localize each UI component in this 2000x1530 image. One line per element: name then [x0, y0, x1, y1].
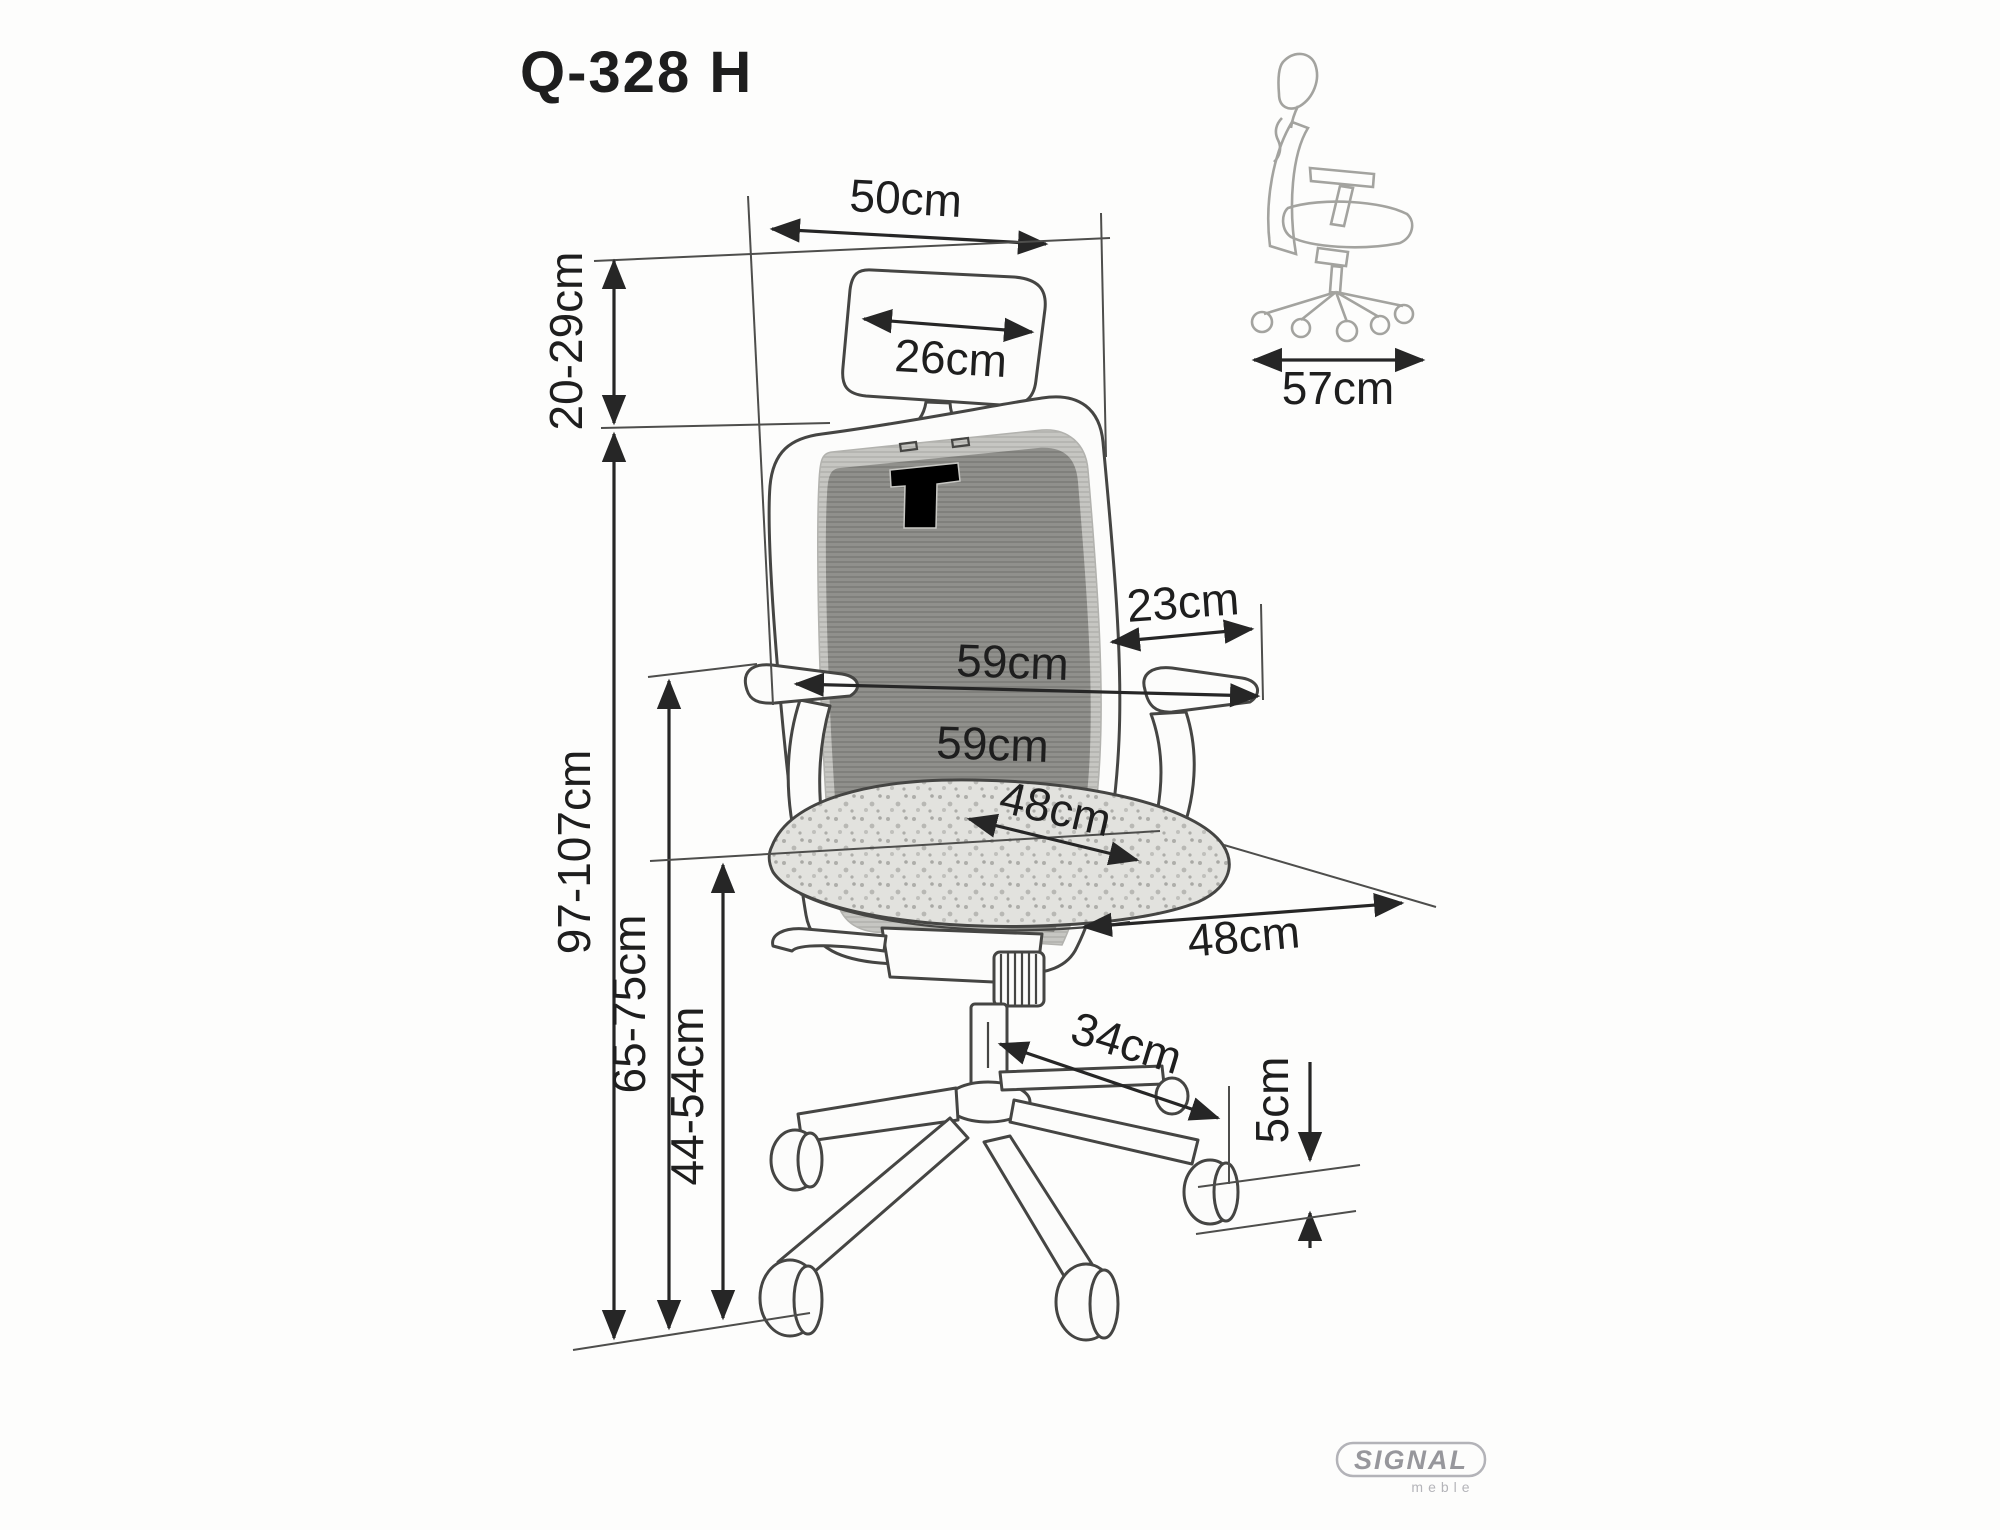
leg-front-right — [984, 1136, 1092, 1276]
dim-label-backrest-width: 50cm — [848, 169, 963, 227]
dim-backrest-width-ext-left — [748, 196, 773, 705]
spec-sheet: Q-328 H 50cm 20-29cm 26cm 23cm 59cm 59cm… — [0, 0, 2000, 1530]
dim-label-headrest-range: 20-29cm — [540, 252, 592, 431]
dim-label-headrest-width: 26cm — [893, 329, 1008, 387]
ref-line-armrest-level — [648, 664, 757, 677]
side-mechanism — [1316, 248, 1348, 266]
side-base — [1252, 292, 1413, 341]
logo-sub-text: meble — [1411, 1479, 1474, 1495]
dim-seat-depth-ext — [1224, 845, 1436, 907]
brand-logo: SIGNAL meble — [1337, 1443, 1485, 1495]
caster-front-left — [760, 1260, 822, 1336]
ref-line-headrest-top — [594, 238, 1110, 261]
dim-backrest-width-ext-right — [1101, 213, 1106, 457]
dim-armrest-pad-ext — [1261, 604, 1263, 700]
caster-back-left — [771, 1130, 822, 1190]
gas-lift-bellow — [994, 952, 1044, 1006]
right-armrest-pad — [1144, 668, 1258, 712]
dim-label-caster: 5cm — [1246, 1057, 1298, 1144]
dim-label-width-mid: 59cm — [935, 716, 1049, 772]
logo-brand-text: SIGNAL — [1354, 1445, 1468, 1475]
dim-label-armrest-height: 65-75cm — [603, 915, 655, 1094]
caster-front-right — [1056, 1264, 1118, 1340]
diagram-canvas: Q-328 H 50cm 20-29cm 26cm 23cm 59cm 59cm… — [0, 0, 2000, 1530]
side-cylinder — [1330, 266, 1342, 293]
dim-label-seat-depth: 48cm — [1185, 905, 1302, 967]
page-title: Q-328 H — [520, 40, 753, 105]
side-armrest — [1310, 168, 1374, 226]
side-headrest — [1278, 54, 1317, 109]
dim-label-side-depth: 57cm — [1282, 362, 1394, 414]
ref-line-backrest-top — [601, 423, 830, 428]
dim-label-armrest-pad: 23cm — [1125, 572, 1241, 632]
dim-label-width-armrests: 59cm — [955, 634, 1069, 690]
side-view-drawing — [1252, 54, 1413, 341]
dim-label-seat-height: 44-54cm — [661, 1007, 713, 1186]
dim-label-total-height: 97-107cm — [548, 750, 600, 955]
